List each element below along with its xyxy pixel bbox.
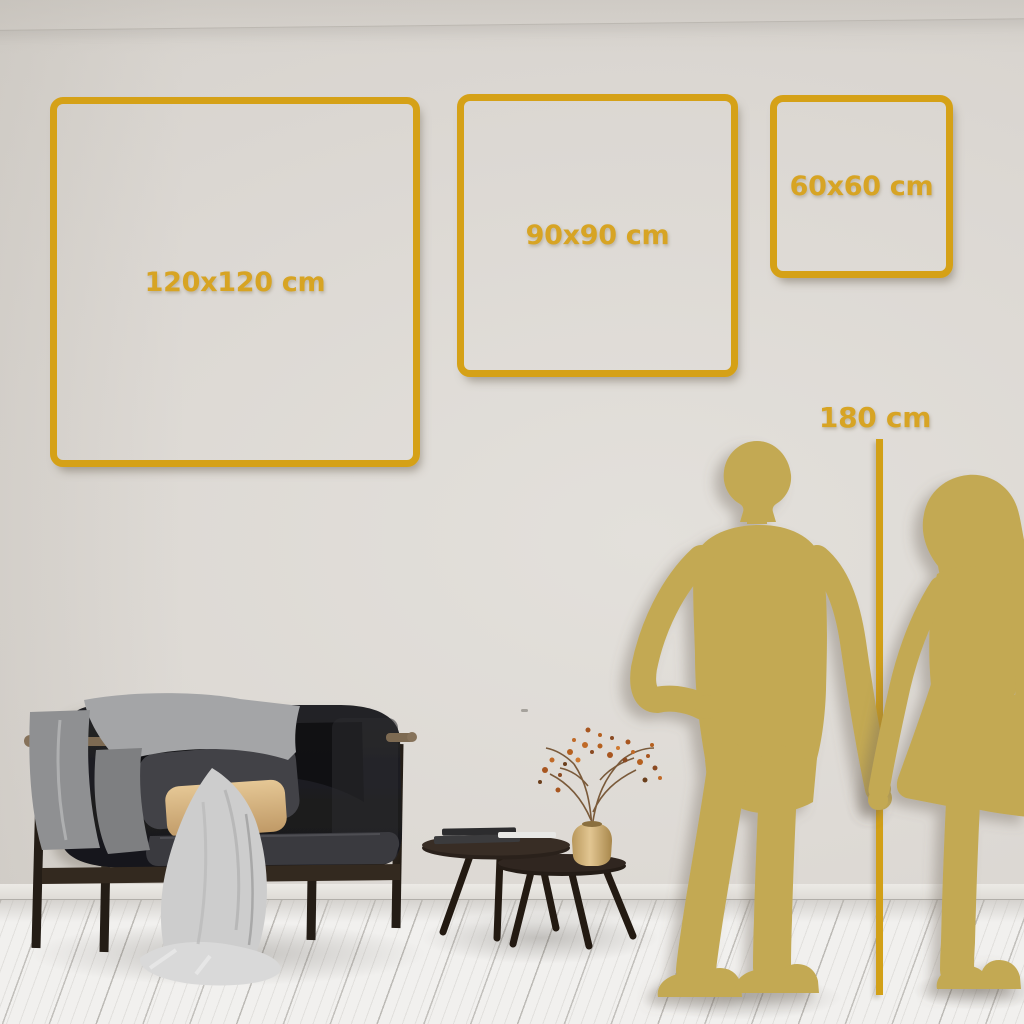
couple-silhouette — [0, 0, 1024, 1024]
woman-silhouette — [868, 475, 1024, 989]
man-silhouette — [643, 441, 892, 997]
man-leg-left — [696, 762, 728, 970]
woman-hand — [868, 790, 888, 810]
man-leg-right — [772, 764, 779, 968]
man-hand-left — [695, 695, 719, 719]
room-scene: 120x120 cm 90x90 cm 60x60 cm 180 cm — [0, 0, 1024, 1024]
woman-leg — [957, 802, 963, 970]
man-arm-left — [643, 558, 703, 707]
